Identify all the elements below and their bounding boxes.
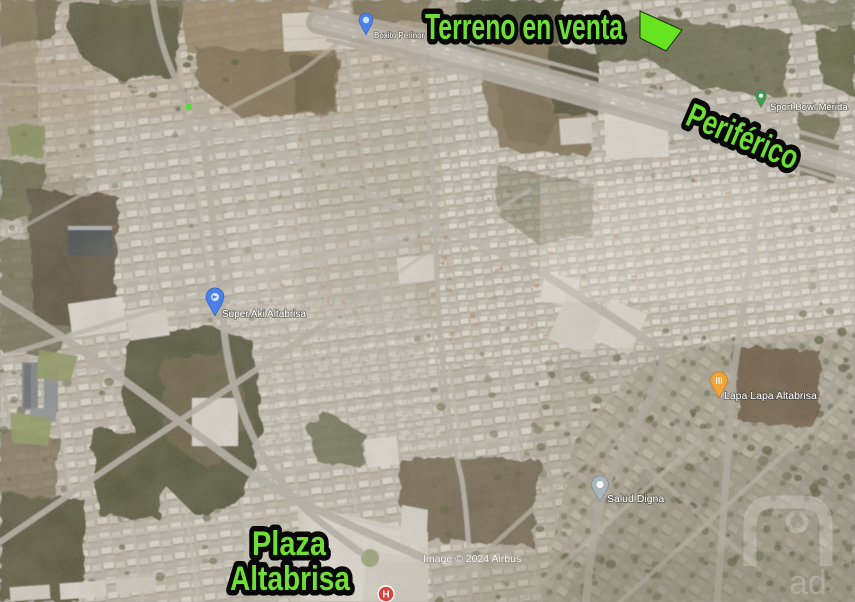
svg-text:Salud Digna: Salud Digna [607, 493, 664, 505]
svg-text:Super Aki Altabrisa: Super Aki Altabrisa [222, 309, 306, 320]
svg-text:Sport Bowl Mérida: Sport Bowl Mérida [770, 102, 848, 113]
svg-text:Lapa Lapa Altabrisa: Lapa Lapa Altabrisa [724, 390, 817, 402]
svg-text:Image © 2024 Airbus: Image © 2024 Airbus [423, 553, 521, 565]
svg-text:Altabrisa: Altabrisa [230, 560, 351, 598]
svg-text:Plaza: Plaza [252, 525, 327, 563]
svg-text:Terreno en venta: Terreno en venta [425, 6, 624, 47]
svg-text:ad: ad [789, 564, 827, 602]
svg-text:Boxito Perinor: Boxito Perinor [374, 31, 425, 40]
svg-text:H: H [382, 590, 389, 601]
